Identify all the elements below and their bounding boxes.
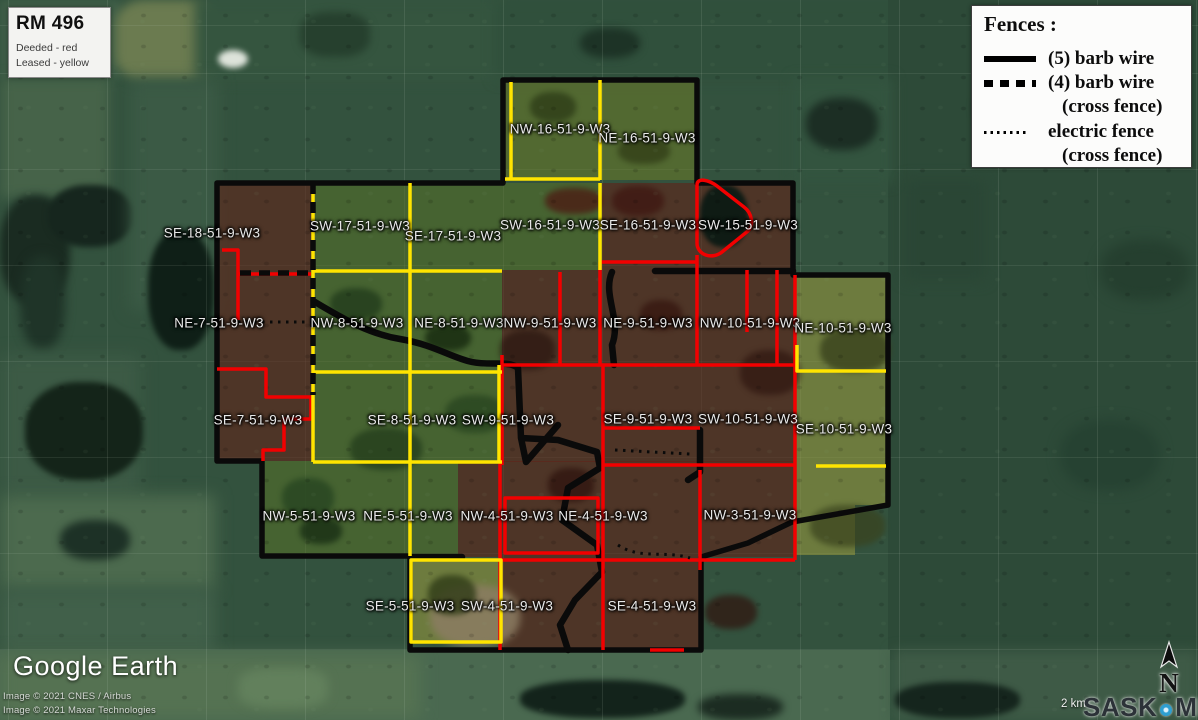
dotted-line-icon [984, 131, 1028, 134]
section-label: SW-4-51-9-W3 [461, 599, 553, 614]
section-label: SE-8-51-9-W3 [368, 413, 457, 428]
dashed-line-icon [984, 80, 1036, 87]
sask-mls-watermark: SASK MLS ® [1083, 692, 1198, 720]
fences-legend-box: Fences : (5) barb wire (4) barb wire (cr… [971, 5, 1192, 168]
section-label: SW-17-51-9-W3 [310, 219, 410, 234]
section-label: SE-17-51-9-W3 [405, 229, 501, 244]
fence-item-label: (4) barb wire [1048, 73, 1154, 94]
imagery-attribution-line1: Image © 2021 CNES / Airbus [3, 691, 131, 702]
section-label: SE-4-51-9-W3 [608, 599, 697, 614]
watermark-sask: SASK [1083, 692, 1157, 720]
section-label: NE-9-51-9-W3 [603, 316, 692, 331]
imagery-attribution-line2: Image © 2021 Maxar Technologies [3, 705, 156, 716]
section-label: SE-18-51-9-W3 [164, 226, 260, 241]
section-label: NW-3-51-9-W3 [704, 508, 797, 523]
section-label: SW-10-51-9-W3 [698, 412, 798, 427]
fence-item-label: (5) barb wire [1048, 49, 1154, 70]
section-label: NW-9-51-9-W3 [504, 316, 597, 331]
section-label: NW-16-51-9-W3 [510, 122, 611, 137]
section-label: NE-8-51-9-W3 [414, 316, 503, 331]
section-label: SW-16-51-9-W3 [500, 218, 600, 233]
section-label: SE-9-51-9-W3 [604, 412, 693, 427]
rm-legend-box: RM 496 Deeded - red Leased - yellow [8, 7, 111, 78]
section-label: NE-16-51-9-W3 [598, 131, 695, 146]
fence-item-sublabel: (cross fence) [1062, 146, 1181, 167]
fence-item-label: electric fence [1048, 122, 1154, 143]
section-label: SW-15-51-9-W3 [698, 218, 798, 233]
section-label: NW-5-51-9-W3 [263, 509, 356, 524]
satellite-map-viewport[interactable]: NW-16-51-9-W3NE-16-51-9-W3SE-18-51-9-W3S… [0, 0, 1198, 720]
google-earth-logo: Google Earth [13, 651, 178, 682]
section-label: SE-10-51-9-W3 [796, 422, 892, 437]
rm-deeded-note: Deeded - red [16, 41, 103, 56]
section-label: NW-8-51-9-W3 [311, 316, 404, 331]
section-label: NE-4-51-9-W3 [558, 509, 647, 524]
fence-legend-item-5-barb: (5) barb wire [984, 49, 1181, 70]
section-label: NE-5-51-9-W3 [363, 509, 452, 524]
solid-line-icon [984, 56, 1036, 62]
fence-legend-item-electric: electric fence [984, 122, 1181, 143]
rm-leased-note: Leased - yellow [16, 56, 103, 71]
section-label: NW-10-51-9-W3 [700, 316, 801, 331]
section-label: SE-5-51-9-W3 [366, 599, 455, 614]
fences-legend-title: Fences : [984, 12, 1181, 37]
rm-title: RM 496 [16, 13, 103, 35]
section-label: SE-7-51-9-W3 [214, 413, 303, 428]
fence-item-sublabel: (cross fence) [1062, 97, 1181, 118]
section-label: SW-9-51-9-W3 [462, 413, 554, 428]
section-label: SE-16-51-9-W3 [600, 218, 696, 233]
section-label: NE-7-51-9-W3 [174, 316, 263, 331]
section-label: NE-10-51-9-W3 [794, 321, 891, 336]
fence-legend-item-4-barb: (4) barb wire [984, 73, 1181, 94]
watermark-mls: MLS [1175, 692, 1198, 720]
section-label: NW-4-51-9-W3 [461, 509, 554, 524]
mls-dot-icon [1160, 704, 1172, 716]
